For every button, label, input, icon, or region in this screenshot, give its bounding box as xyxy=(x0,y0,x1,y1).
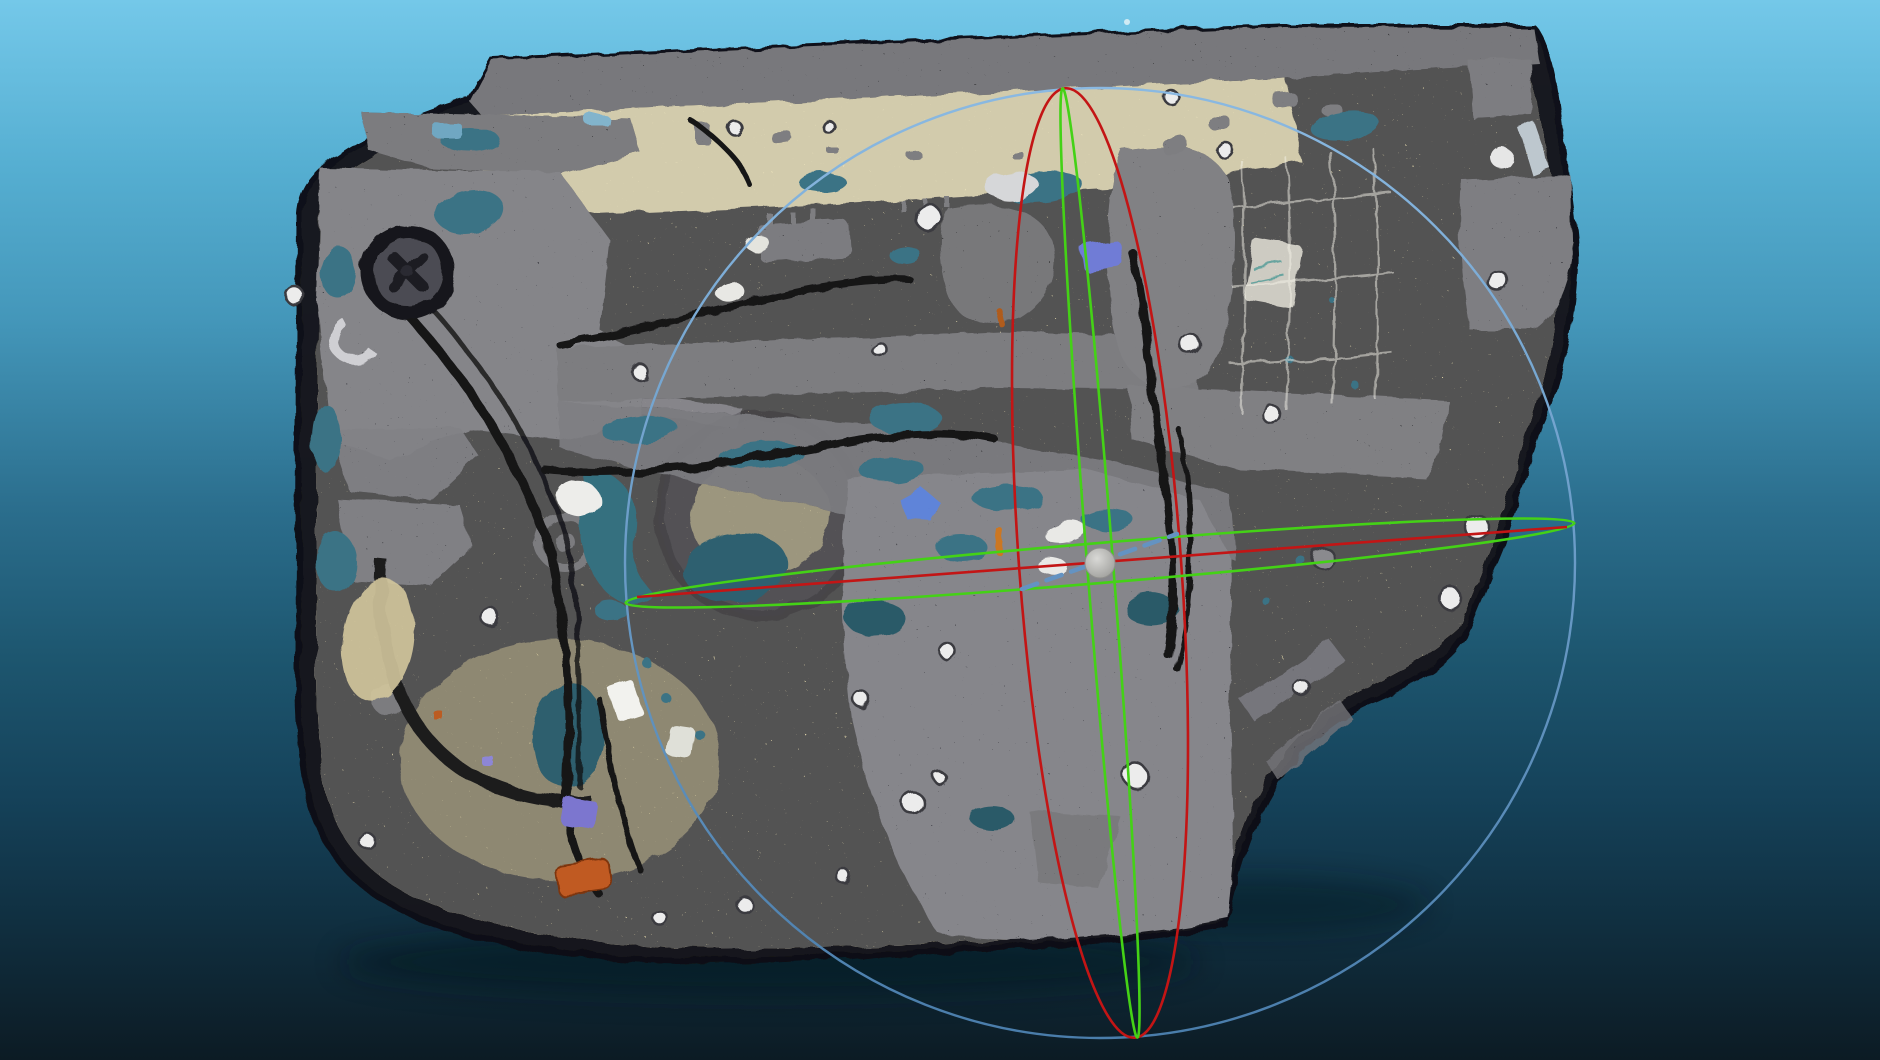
screw-emblem xyxy=(361,225,455,319)
scan-object-door-panel[interactable] xyxy=(286,27,1575,960)
gizmo-center-sphere[interactable] xyxy=(1085,548,1115,578)
3d-viewport[interactable] xyxy=(0,0,1880,1060)
stray-speck xyxy=(1124,19,1130,25)
